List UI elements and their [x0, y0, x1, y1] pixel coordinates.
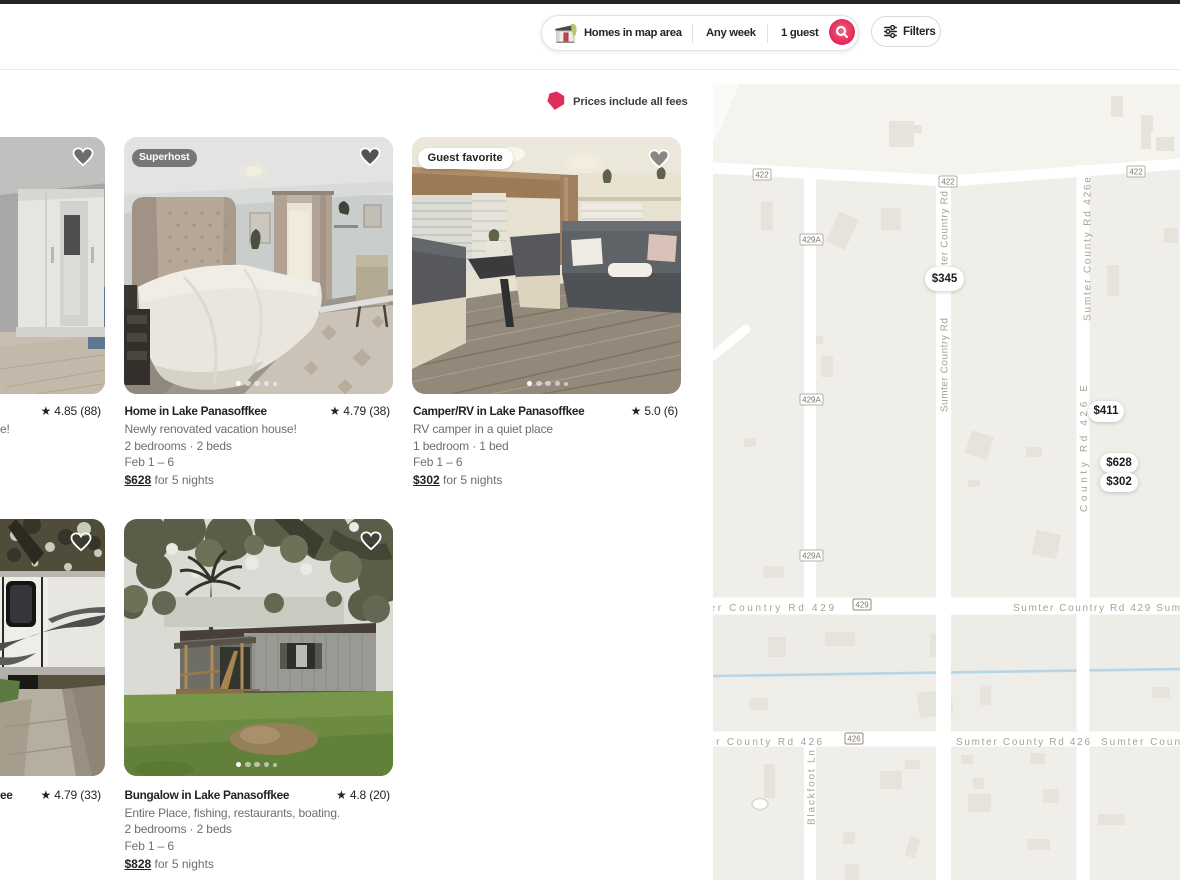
svg-text:Sumter Coun: Sumter Coun — [1101, 737, 1180, 748]
svg-text:ter County Rd 426: ter County Rd 426 — [713, 737, 822, 748]
svg-text:429A: 429A — [802, 396, 821, 405]
svg-text:Sumter County Rd 426: Sumter County Rd 426 — [956, 737, 1090, 748]
svg-text:429: 429 — [855, 601, 869, 610]
svg-text:ter Country Rd: ter Country Rd — [940, 191, 951, 265]
svg-text:422: 422 — [755, 171, 769, 180]
svg-text:Sumter County Rd 426e: Sumter County Rd 426e — [1083, 177, 1094, 321]
svg-text:422: 422 — [941, 178, 955, 187]
svg-text:County Rd 426 E: County Rd 426 E — [1079, 385, 1090, 512]
svg-text:429A: 429A — [802, 236, 821, 245]
svg-text:426: 426 — [847, 735, 861, 744]
svg-text:422: 422 — [1129, 168, 1143, 177]
svg-text:429A: 429A — [802, 552, 821, 561]
svg-text:Sumter Country Rd: Sumter Country Rd — [940, 318, 951, 412]
